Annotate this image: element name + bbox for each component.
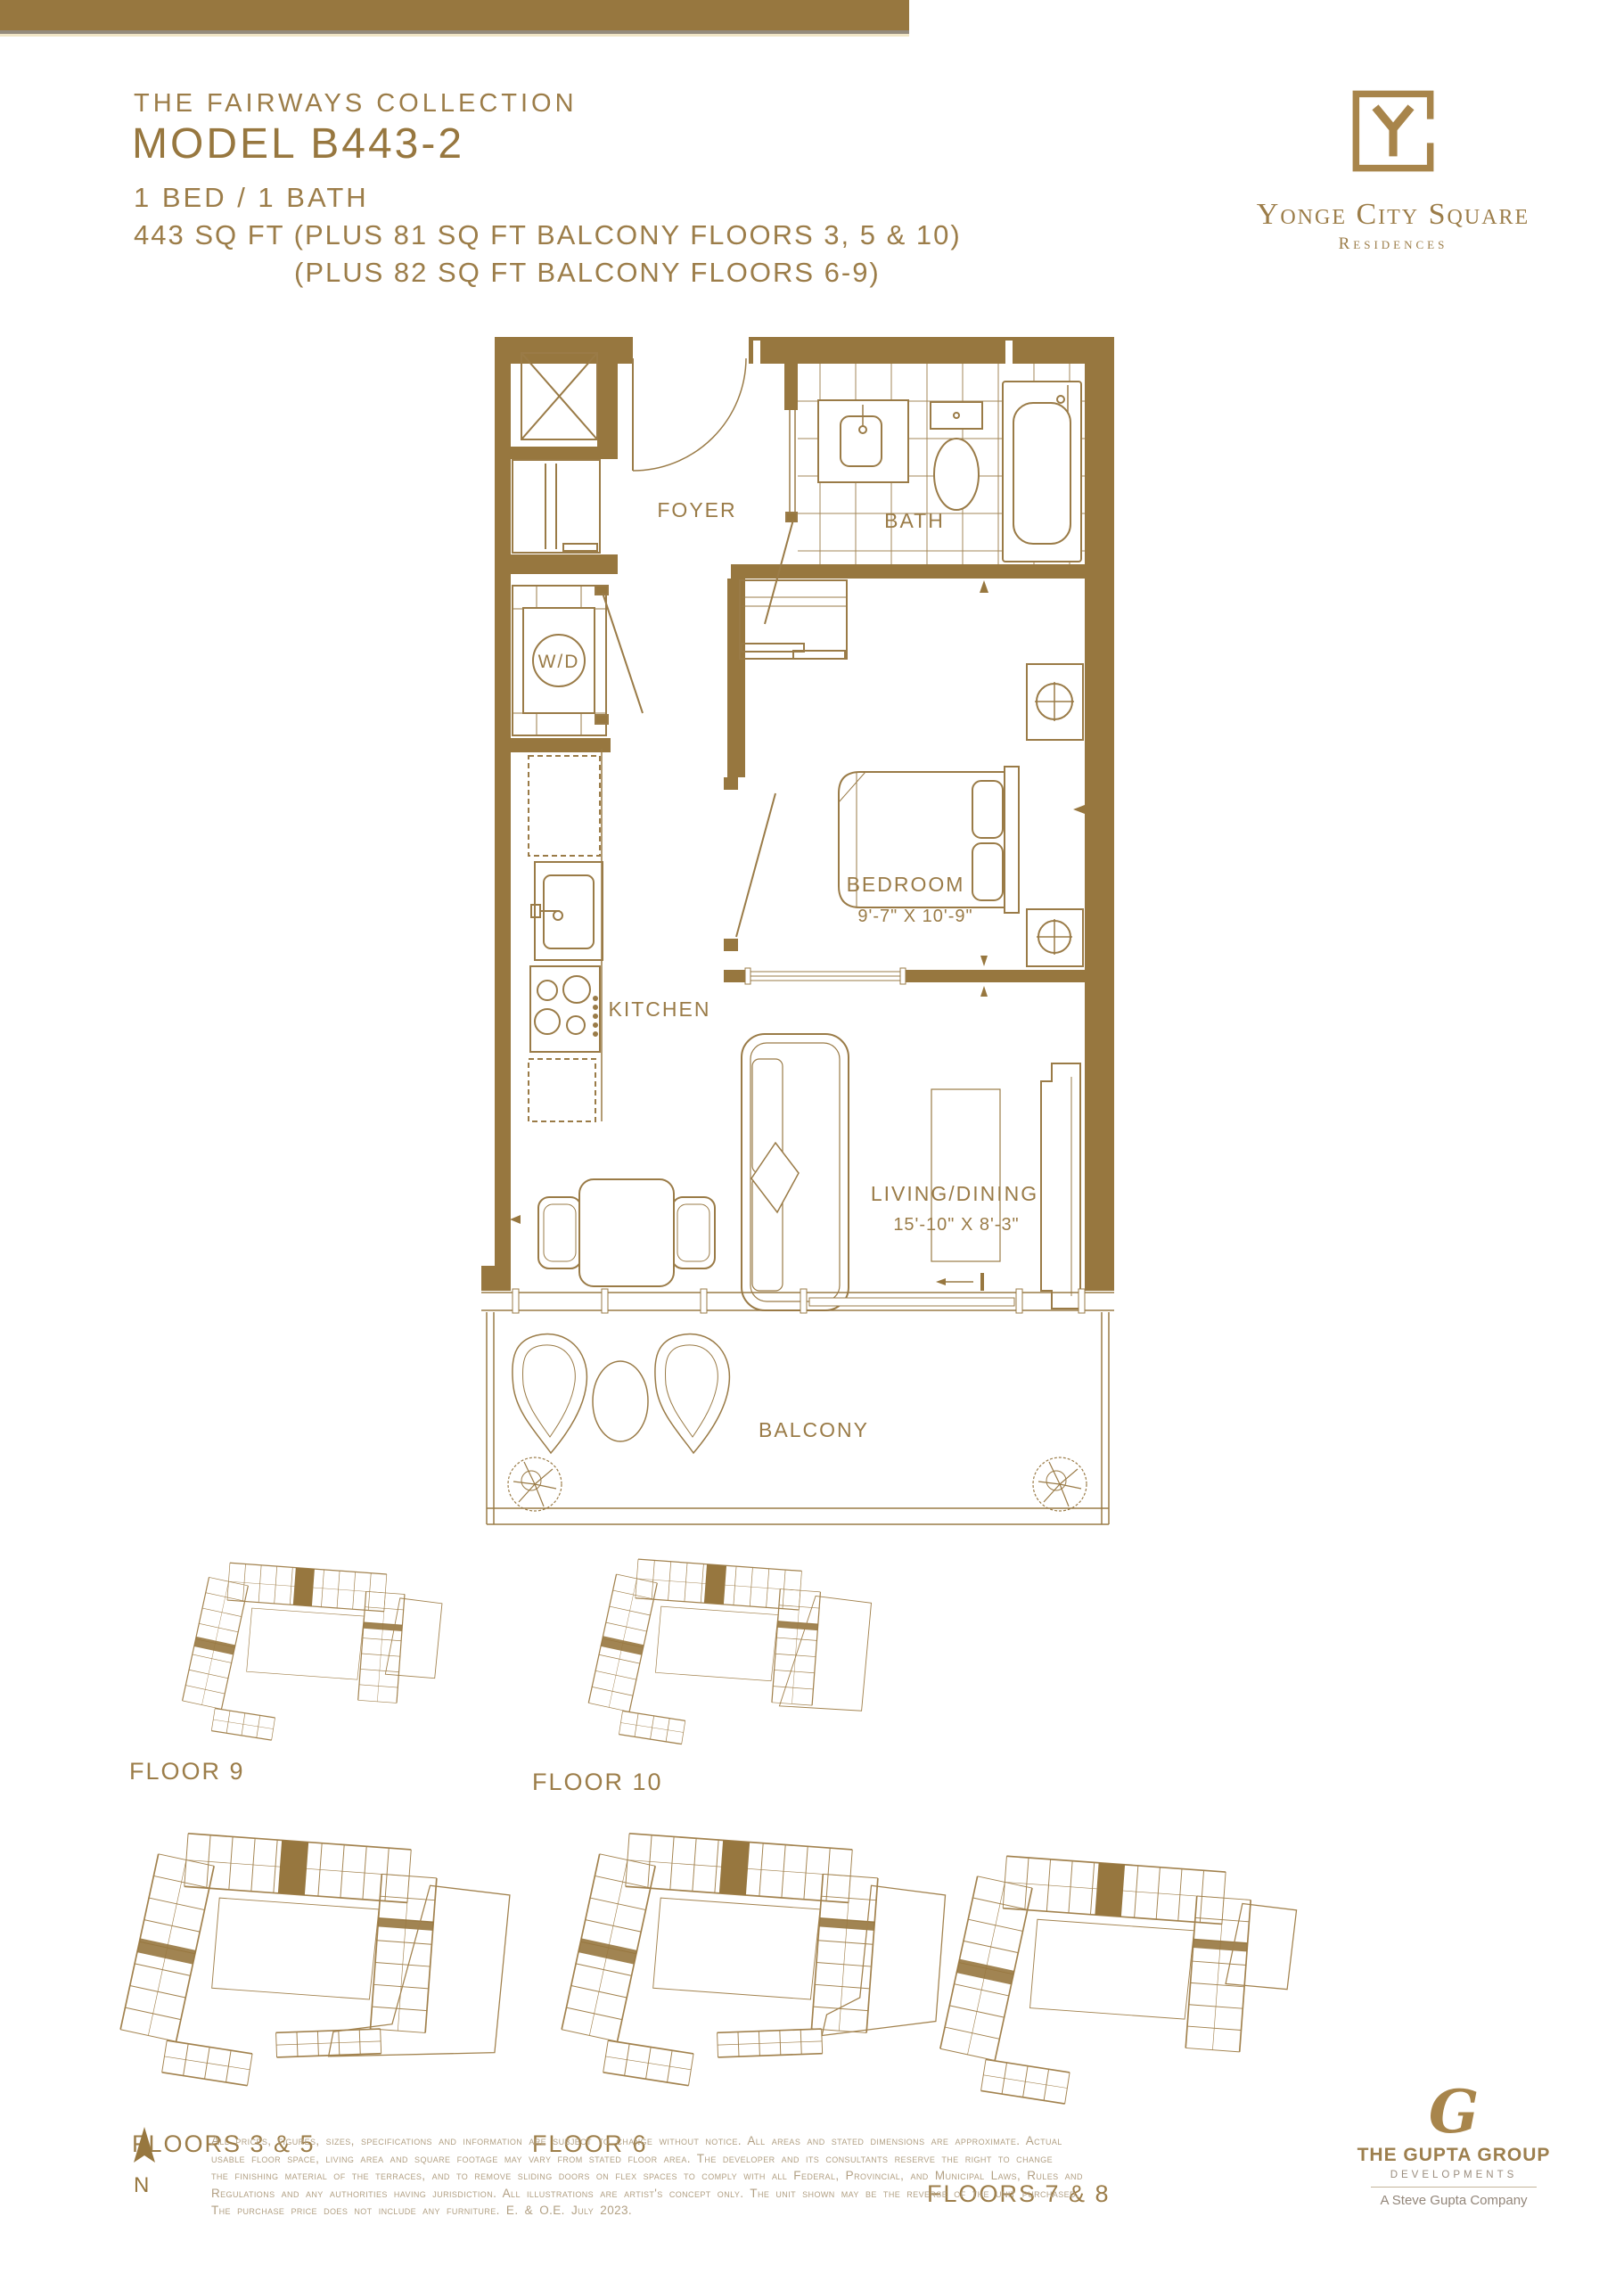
door-frame-notch — [1005, 341, 1013, 364]
disclaimer-line: Regulations and any authorities having j… — [211, 2185, 1336, 2203]
top-accent-bar — [0, 0, 909, 30]
kitchen-sink — [531, 862, 603, 960]
bathtub-icon — [1003, 382, 1081, 562]
fixtures — [481, 353, 1114, 1524]
developer-division: DEVELOPMENTS — [1337, 2170, 1571, 2180]
keyplan-label-floor-10: FLOOR 10 — [532, 1769, 663, 1796]
balcony-chair — [513, 1334, 587, 1453]
top-accent-bar-edge-light — [0, 34, 909, 37]
developer-divider — [1371, 2187, 1537, 2188]
planter-icon — [508, 1457, 562, 1511]
door-post — [595, 586, 608, 595]
disclaimer-line: All prices, figures, sizes, specificatio… — [211, 2132, 1336, 2150]
nightstand-lamp — [1027, 664, 1083, 740]
developer-tagline: A Steve Gupta Company — [1337, 2193, 1571, 2208]
wd-door-leaf — [603, 593, 643, 713]
gupta-monogram-icon: G — [1337, 2081, 1571, 2143]
disclaimer-text: All prices, figures, sizes, specificatio… — [211, 2132, 1336, 2220]
keyplan-floor-10 — [519, 1540, 929, 1756]
toilet-icon — [931, 402, 982, 510]
shaft-icon — [521, 353, 597, 439]
balcony-table — [593, 1361, 648, 1441]
room-label-wd: W/D — [538, 652, 580, 672]
keyplan-label-floor-9: FLOOR 9 — [129, 1758, 245, 1785]
dining-table — [538, 1179, 715, 1286]
disclaimer-line: usable floor space, living area and squa… — [211, 2150, 1336, 2168]
disclaimer-line: The purchase price does not include any … — [211, 2202, 1336, 2220]
bath-door — [765, 410, 797, 624]
bedroom-door-leaf — [736, 793, 775, 937]
bedroom-closet — [740, 580, 847, 659]
room-label-balcony: BALCONY — [759, 1418, 869, 1441]
area-rug — [931, 1089, 1000, 1261]
yonge-city-square-logo-icon — [1349, 86, 1438, 176]
keyplan-floor-9 — [125, 1545, 499, 1752]
door-post — [595, 715, 608, 724]
room-label-living: LIVING/DINING — [871, 1182, 1038, 1205]
nightstand-lamp — [1027, 909, 1083, 966]
kitchen-cabinet — [529, 1059, 595, 1121]
unit-floorplan: FOYER BATH W/D KITCHEN BEDROOM 9'-7" X 1… — [481, 330, 1123, 1542]
door-frame-notch — [753, 341, 760, 364]
bath-vanity — [818, 400, 908, 482]
bedroom-dimensions: 9'-7" X 10'-9" — [857, 907, 972, 926]
foyer-closet — [513, 460, 600, 553]
developer-name: THE GUPTA GROUP — [1337, 2145, 1571, 2166]
developer-logo: G THE GUPTA GROUP DEVELOPMENTS A Steve G… — [1337, 2081, 1571, 2208]
bed-bath-line: 1 BED / 1 BATH — [134, 182, 369, 214]
area-line-1: 443 SQ FT (PLUS 81 SQ FT BALCONY FLOORS … — [134, 219, 962, 251]
kitchen-stove — [530, 966, 600, 1052]
keyplan-floor-6 — [528, 1808, 964, 2102]
brochure-page: THE FAIRWAYS COLLECTION MODEL B443-2 1 B… — [0, 0, 1624, 2282]
room-label-foyer: FOYER — [657, 498, 736, 521]
brand-subtitle: Residences — [1246, 234, 1540, 254]
tv-unit — [1041, 1063, 1080, 1309]
entry-door — [633, 358, 746, 471]
room-label-bedroom: BEDROOM — [847, 873, 965, 896]
keyplan-floors-7-8 — [916, 1810, 1326, 2141]
keyplan-floors-3-5 — [91, 1808, 519, 2102]
planter-icon — [1033, 1457, 1087, 1511]
north-label: N — [134, 2173, 150, 2198]
sofa-icon — [742, 1034, 849, 1310]
area-line-2: (PLUS 82 SQ FT BALCONY FLOORS 6-9) — [294, 257, 881, 289]
model-title: MODEL B443-2 — [132, 119, 464, 168]
brand-name: Yonge City Square — [1246, 198, 1540, 232]
balcony-chair — [655, 1334, 730, 1453]
disclaimer-line: the finishing material of the terraces, … — [211, 2167, 1336, 2185]
room-label-kitchen: KITCHEN — [609, 997, 711, 1021]
living-dimensions: 15'-10" X 8'-3" — [893, 1215, 1019, 1235]
collection-title: THE FAIRWAYS COLLECTION — [134, 89, 578, 119]
bedroom-sliding-door — [745, 968, 906, 984]
room-label-bath: BATH — [884, 509, 945, 532]
kitchen-fridge — [529, 756, 600, 856]
